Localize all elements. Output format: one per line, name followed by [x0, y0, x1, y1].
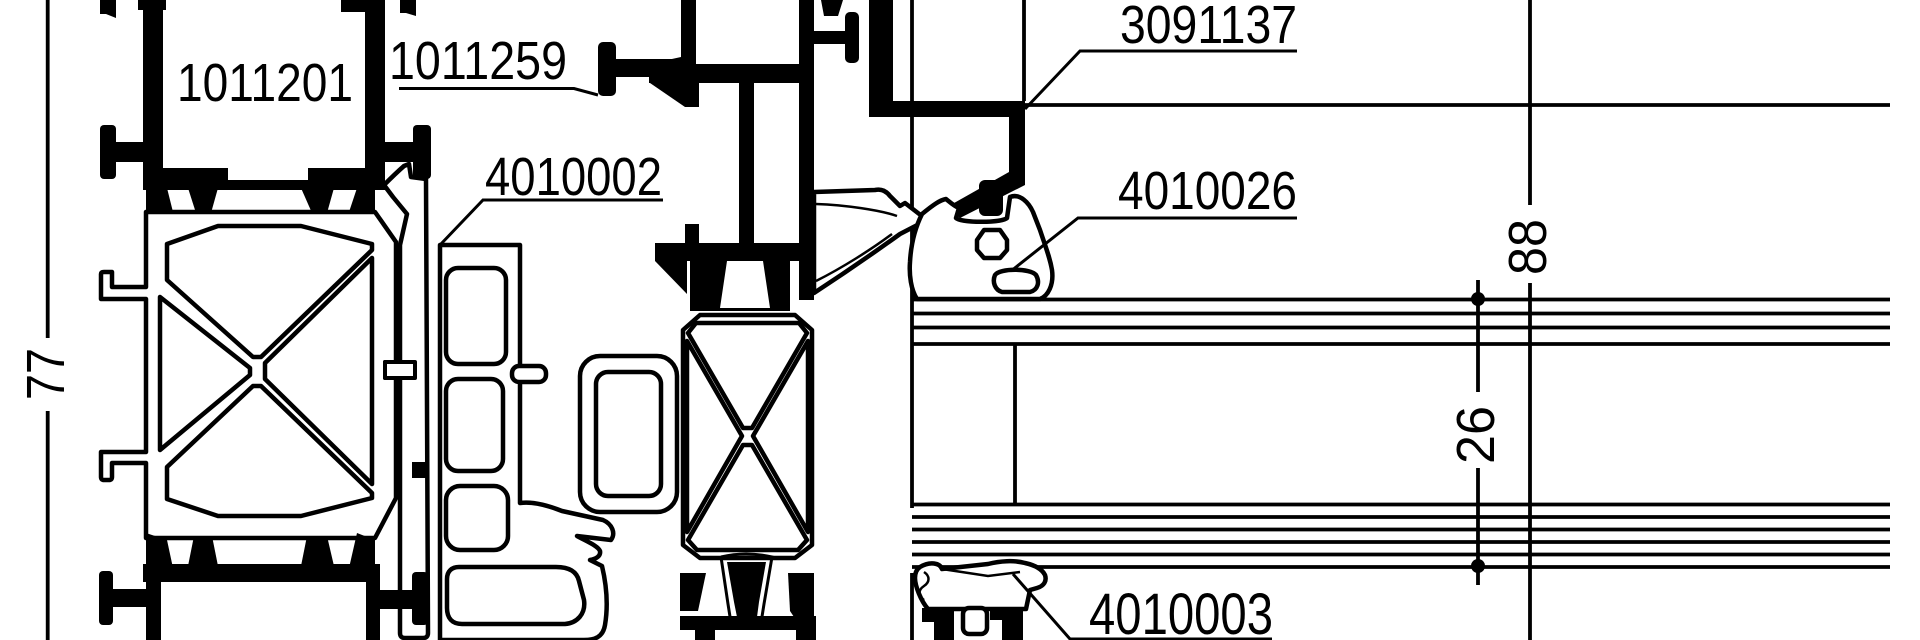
svg-text:26: 26 — [1446, 406, 1506, 464]
svg-text:1011201: 1011201 — [177, 53, 353, 113]
svg-text:88: 88 — [1498, 219, 1558, 275]
svg-text:4010003: 4010003 — [1089, 582, 1273, 640]
svg-text:4010002: 4010002 — [485, 147, 662, 207]
svg-text:4010026: 4010026 — [1118, 161, 1297, 221]
svg-text:1011259: 1011259 — [389, 31, 567, 91]
svg-text:3091137: 3091137 — [1120, 0, 1297, 55]
svg-text:77: 77 — [16, 348, 76, 400]
